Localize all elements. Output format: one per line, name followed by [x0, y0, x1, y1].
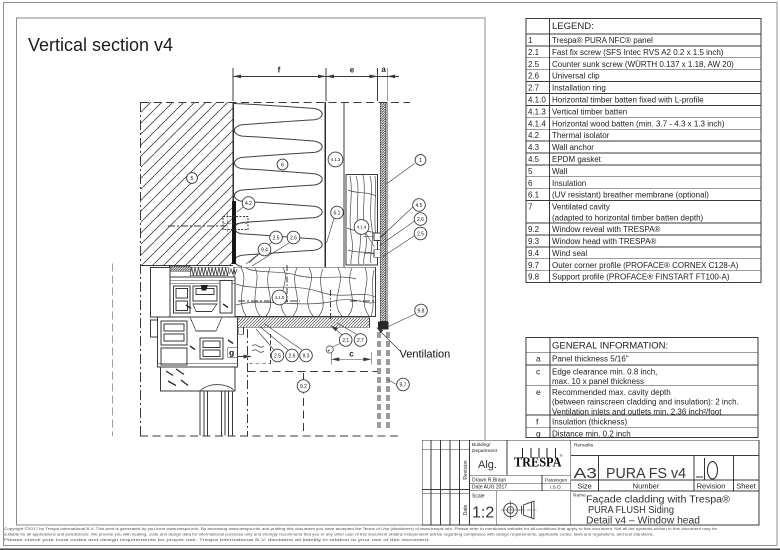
svg-text:2.5: 2.5: [274, 353, 281, 359]
svg-text:Horizontal timber batten fixed: Horizontal timber batten fixed with L-pr…: [552, 96, 704, 105]
svg-text:Remarks: Remarks: [574, 442, 594, 448]
svg-text:Ventilation inlets and outlets: Ventilation inlets and outlets min. 2.36…: [552, 407, 722, 416]
svg-text:9.4: 9.4: [528, 249, 540, 258]
svg-text:g: g: [229, 348, 234, 358]
svg-text:a: a: [381, 65, 386, 74]
svg-text:9.2: 9.2: [300, 384, 307, 390]
svg-text:A3: A3: [574, 465, 598, 482]
svg-text:2.7: 2.7: [357, 338, 364, 344]
svg-text:Trespa® PURA NFC® panel: Trespa® PURA NFC® panel: [552, 36, 653, 45]
svg-text:c: c: [349, 349, 354, 358]
svg-text:g: g: [536, 429, 541, 439]
svg-text:5: 5: [528, 167, 533, 176]
svg-text:Ventilated cavity: Ventilated cavity: [552, 203, 610, 212]
svg-text:9.2: 9.2: [528, 225, 540, 234]
svg-text:Size: Size: [577, 482, 592, 491]
svg-text:EPDM gasket: EPDM gasket: [552, 155, 602, 164]
svg-text:Installation ring: Installation ring: [552, 84, 606, 93]
svg-text:Window reveal with TRESPA®: Window reveal with TRESPA®: [552, 225, 660, 234]
svg-text:9.7: 9.7: [400, 382, 407, 388]
svg-text:max. 10 x panel thickness: max. 10 x panel thickness: [552, 377, 644, 386]
svg-text:f: f: [278, 66, 281, 75]
svg-text:Wind seal: Wind seal: [552, 249, 587, 258]
svg-text:Alg.: Alg.: [478, 459, 497, 471]
svg-text:Universal clip: Universal clip: [552, 72, 600, 81]
svg-text:Fast fix screw (SFS Intec RVS: Fast fix screw (SFS Intec RVS A2 0.2 x 1…: [552, 48, 724, 57]
svg-text:GENERAL INFORMATION:: GENERAL INFORMATION:: [552, 341, 668, 352]
svg-text:2.5: 2.5: [273, 235, 280, 241]
svg-text:Wall anchor: Wall anchor: [552, 143, 594, 152]
svg-text:e: e: [350, 66, 355, 75]
svg-text:Building/: Building/: [472, 442, 491, 448]
svg-text:4.1.0: 4.1.0: [275, 295, 285, 300]
svg-text:Window head with TRESPA®: Window head with TRESPA®: [552, 237, 656, 246]
svg-text:2.7: 2.7: [528, 84, 540, 93]
svg-text:Recommended max. cavity depth: Recommended max. cavity depth: [552, 388, 671, 397]
svg-text:Insulation (thickness): Insulation (thickness): [552, 417, 627, 426]
svg-text:Wall: Wall: [552, 167, 567, 176]
svg-text:Distance min. 0.2 inch: Distance min. 0.2 inch: [552, 430, 631, 439]
svg-text:2.5: 2.5: [417, 231, 424, 237]
svg-text:9.3: 9.3: [303, 353, 310, 359]
svg-text:6: 6: [528, 179, 533, 188]
svg-text:9.4: 9.4: [261, 247, 268, 253]
svg-text:Horizontal wood batten (min. 3: Horizontal wood batten (min. 3.7 - 4.3 x…: [552, 119, 725, 128]
svg-text:Date: Date: [463, 505, 469, 516]
svg-text:Please check your local codes: Please check your local codes and design…: [4, 537, 430, 542]
svg-text:Sheet: Sheet: [736, 482, 757, 491]
svg-text:Name: Name: [573, 493, 586, 499]
svg-text:(adapted to horizontal timber: (adapted to horizontal timber batten dep…: [552, 213, 704, 222]
svg-text:a: a: [536, 354, 541, 364]
svg-text:4.5: 4.5: [416, 203, 423, 209]
svg-text:2.1: 2.1: [528, 48, 540, 57]
svg-text:4.2: 4.2: [528, 131, 540, 140]
svg-text:4.5: 4.5: [528, 155, 540, 164]
svg-text:(between rainscreen cladding a: (between rainscreen cladding and insulat…: [552, 398, 739, 407]
svg-text:2.6: 2.6: [290, 235, 297, 241]
svg-text:Support profile (PROFACE® FINS: Support profile (PROFACE® FINSTART FT100…: [552, 273, 730, 282]
svg-text:Façade cladding with Trespa®: Façade cladding with Trespa®: [586, 495, 731, 506]
svg-text:9.3: 9.3: [528, 237, 540, 246]
svg-text:Revision: Revision: [697, 482, 726, 491]
svg-text:4.2: 4.2: [245, 201, 252, 207]
svg-text:1: 1: [528, 36, 533, 45]
svg-text:LEGEND:: LEGEND:: [552, 21, 594, 32]
svg-text:2.6: 2.6: [417, 217, 424, 223]
svg-text:Department: Department: [472, 448, 498, 454]
svg-text:Ventilation: Ventilation: [400, 349, 451, 361]
svg-text:6.1: 6.1: [334, 210, 341, 216]
svg-text:Thermal isolator: Thermal isolator: [552, 131, 610, 140]
svg-text:Vertical timber batten: Vertical timber batten: [552, 107, 627, 116]
svg-text:2.6: 2.6: [289, 353, 296, 359]
svg-text:4.1.3: 4.1.3: [331, 157, 341, 162]
svg-text:(UV resistant) breather membra: (UV resistant) breather membrane (option…: [552, 191, 709, 200]
svg-text:4.3: 4.3: [528, 143, 540, 152]
svg-text:9.8: 9.8: [418, 308, 425, 314]
svg-text:1:2: 1:2: [472, 505, 494, 522]
svg-text:5: 5: [191, 176, 194, 182]
svg-text:6: 6: [281, 162, 284, 168]
svg-text:Edge clearance min. 0.8 inch,: Edge clearance min. 0.8 inch,: [552, 367, 657, 376]
svg-text:suitable for all applications: suitable for all applications and jurisd…: [4, 532, 654, 537]
svg-text:4.1.4: 4.1.4: [528, 119, 546, 128]
svg-text:2.5: 2.5: [528, 60, 540, 69]
svg-text:Passingen: Passingen: [545, 478, 568, 484]
svg-text:Revision: Revision: [463, 460, 469, 479]
svg-text:Panel thickness 5/16": Panel thickness 5/16": [552, 355, 629, 364]
svg-text:Date AUG 2017: Date AUG 2017: [472, 485, 507, 491]
svg-text:7: 7: [528, 203, 533, 212]
svg-text:Detail v4 – Window head: Detail v4 – Window head: [586, 516, 700, 527]
svg-text:4.1.3: 4.1.3: [528, 107, 546, 116]
svg-text:Drawn R.Braun: Drawn R.Braun: [472, 478, 506, 484]
svg-text:1: 1: [419, 158, 422, 164]
svg-text:Number: Number: [633, 482, 660, 491]
svg-text:Outer corner profile (PROFACE®: Outer corner profile (PROFACE® CORNEX C1…: [552, 261, 739, 270]
svg-text:TRESPA: TRESPA: [514, 455, 562, 470]
svg-text:I.S.O.: I.S.O.: [550, 485, 562, 491]
svg-text:9.7: 9.7: [528, 261, 540, 270]
svg-text:Insulation: Insulation: [552, 179, 586, 188]
svg-text:2.6: 2.6: [528, 72, 540, 81]
svg-text:2.1: 2.1: [342, 338, 349, 344]
svg-text:PURA FLUSH Siding: PURA FLUSH Siding: [588, 505, 674, 516]
svg-text:e: e: [536, 387, 541, 397]
svg-text:PURA FS v4: PURA FS v4: [606, 466, 686, 482]
svg-text:4.1.4: 4.1.4: [357, 225, 367, 230]
svg-text:Scale: Scale: [472, 494, 485, 500]
svg-text:6.1: 6.1: [528, 191, 540, 200]
svg-text:Copyright ©2017 by Trespa Inte: Copyright ©2017 by Trespa International …: [4, 526, 718, 531]
svg-text:4.1.0: 4.1.0: [528, 96, 546, 105]
svg-text:®: ®: [560, 453, 563, 458]
svg-text:Vertical section v4: Vertical section v4: [28, 35, 173, 55]
svg-text:Counter sunk screw (WÜRTH 0.13: Counter sunk screw (WÜRTH 0.137 x 1.18, …: [552, 60, 734, 69]
svg-text:9.8: 9.8: [528, 273, 540, 282]
